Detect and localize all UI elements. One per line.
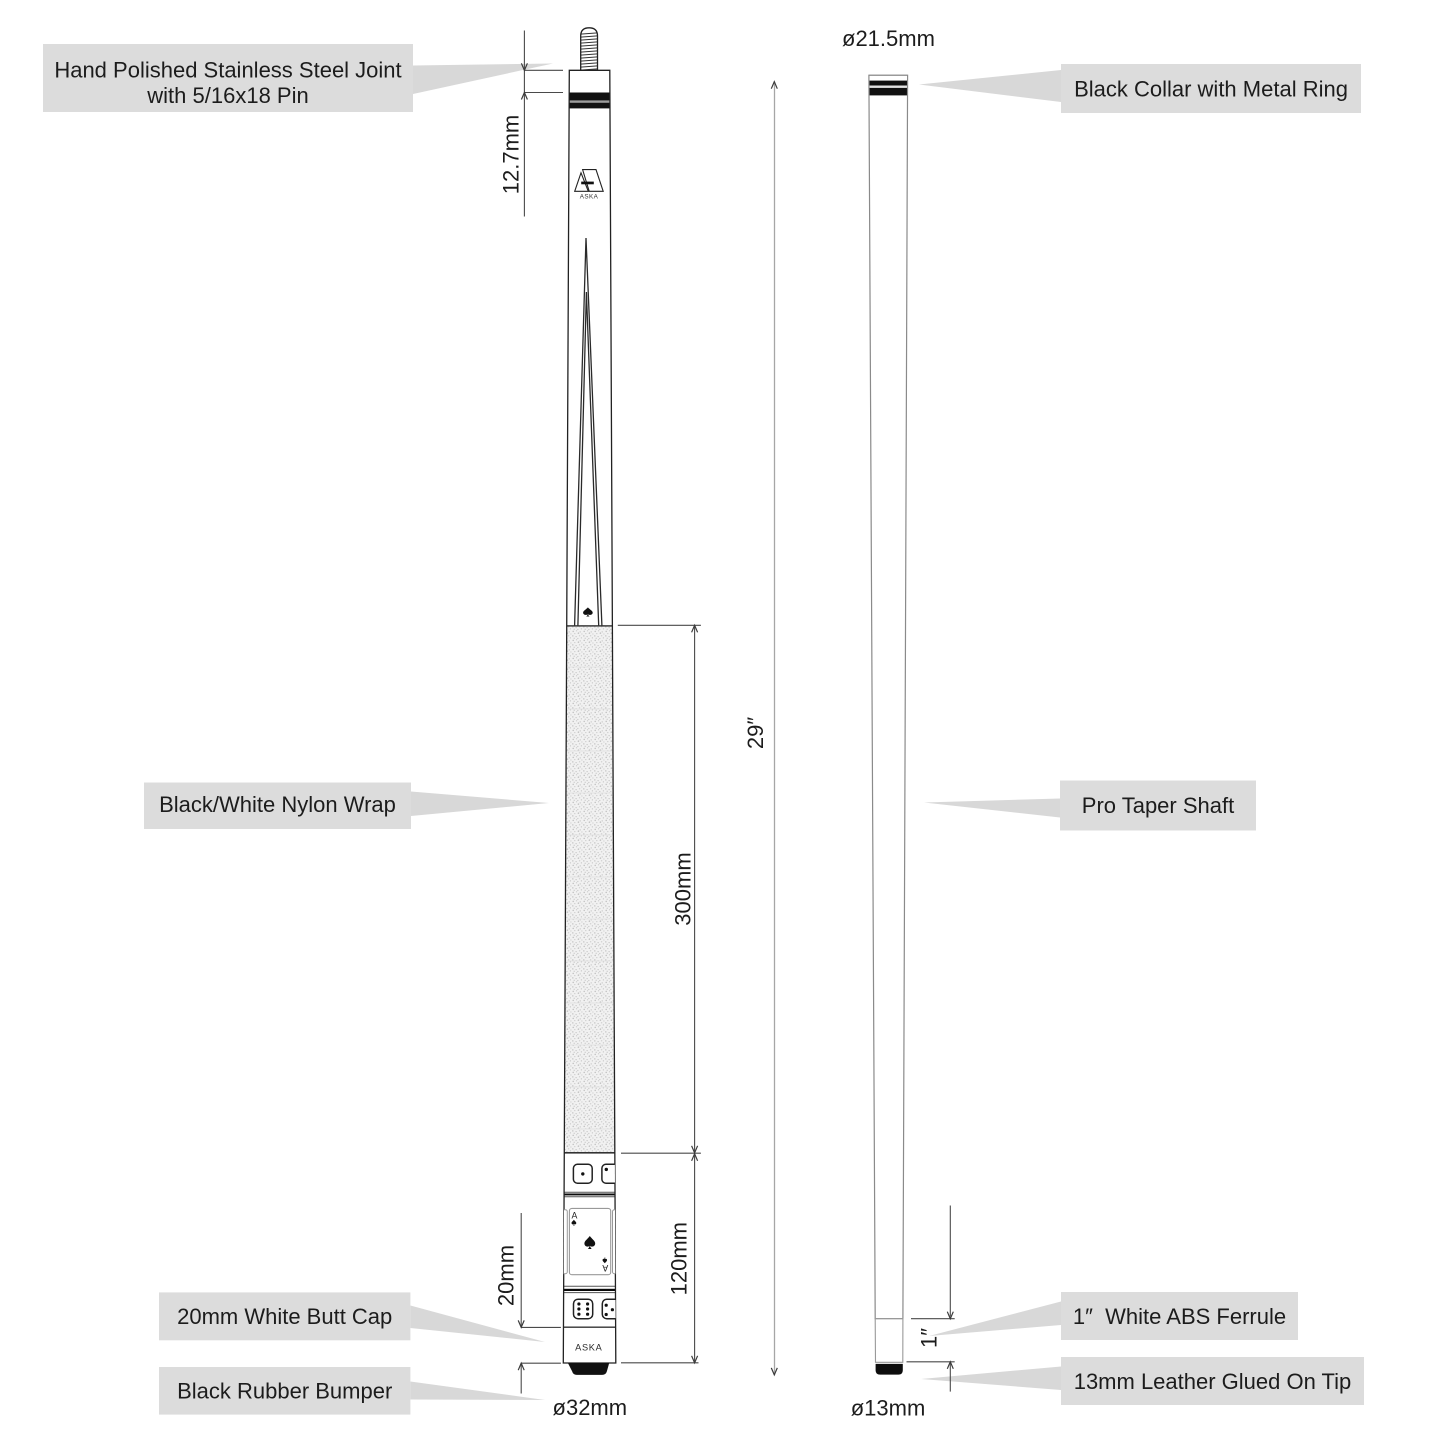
svg-text:20mm White Butt Cap: 20mm White Butt Cap — [177, 1304, 392, 1329]
svg-text:20mm: 20mm — [493, 1245, 518, 1306]
svg-text:ø21.5mm: ø21.5mm — [842, 26, 935, 51]
svg-text:120mm: 120mm — [666, 1222, 691, 1295]
svg-text:ø13mm: ø13mm — [851, 1396, 926, 1421]
svg-text:A: A — [602, 1263, 608, 1273]
svg-text:Hand Polished Stainless Steel: Hand Polished Stainless Steel Joint — [54, 58, 401, 83]
svg-text:29″: 29″ — [743, 717, 768, 749]
svg-text:Black/White Nylon Wrap: Black/White Nylon Wrap — [159, 792, 396, 817]
svg-text:1″: 1″ — [917, 1328, 942, 1348]
svg-text:Black Collar with Metal Ring: Black Collar with Metal Ring — [1074, 77, 1348, 102]
svg-text:ASKA: ASKA — [575, 1343, 602, 1353]
svg-text:12.7mm: 12.7mm — [498, 115, 523, 194]
svg-text:13mm Leather Glued On Tip: 13mm Leather Glued On Tip — [1074, 1369, 1352, 1394]
svg-text:Black Rubber Bumper: Black Rubber Bumper — [177, 1379, 392, 1404]
svg-text:A: A — [572, 1210, 578, 1220]
svg-text:1″ White ABS Ferrule: 1″ White ABS Ferrule — [1073, 1304, 1286, 1329]
svg-text:ASKA: ASKA — [580, 193, 599, 200]
svg-text:with 5/16x18 Pin: with 5/16x18 Pin — [146, 83, 308, 108]
svg-text:300mm: 300mm — [670, 852, 695, 925]
svg-text:ø32mm: ø32mm — [553, 1395, 628, 1420]
svg-text:Pro Taper Shaft: Pro Taper Shaft — [1082, 793, 1234, 818]
